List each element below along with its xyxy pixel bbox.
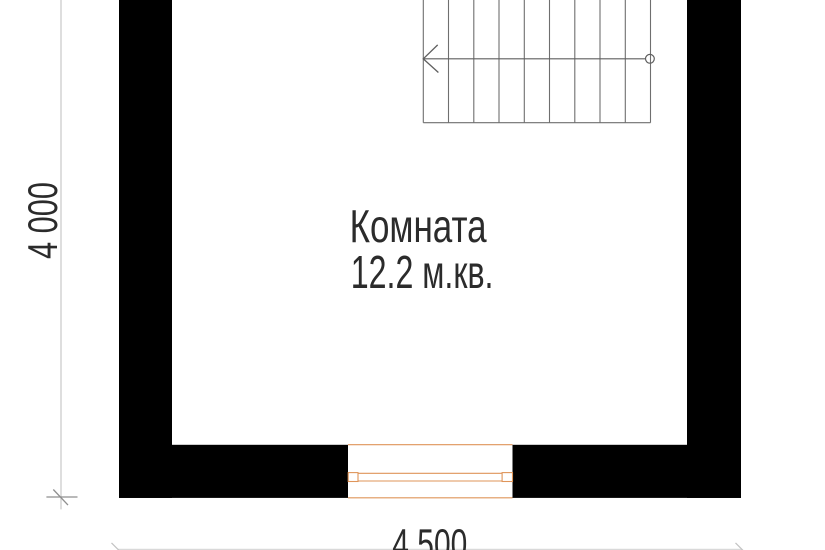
svg-text:4 000: 4 000 — [19, 182, 66, 259]
svg-text:12.2 м.кв.: 12.2 м.кв. — [351, 246, 494, 298]
svg-text:Комната: Комната — [350, 200, 487, 252]
svg-text:4 500: 4 500 — [392, 520, 467, 550]
